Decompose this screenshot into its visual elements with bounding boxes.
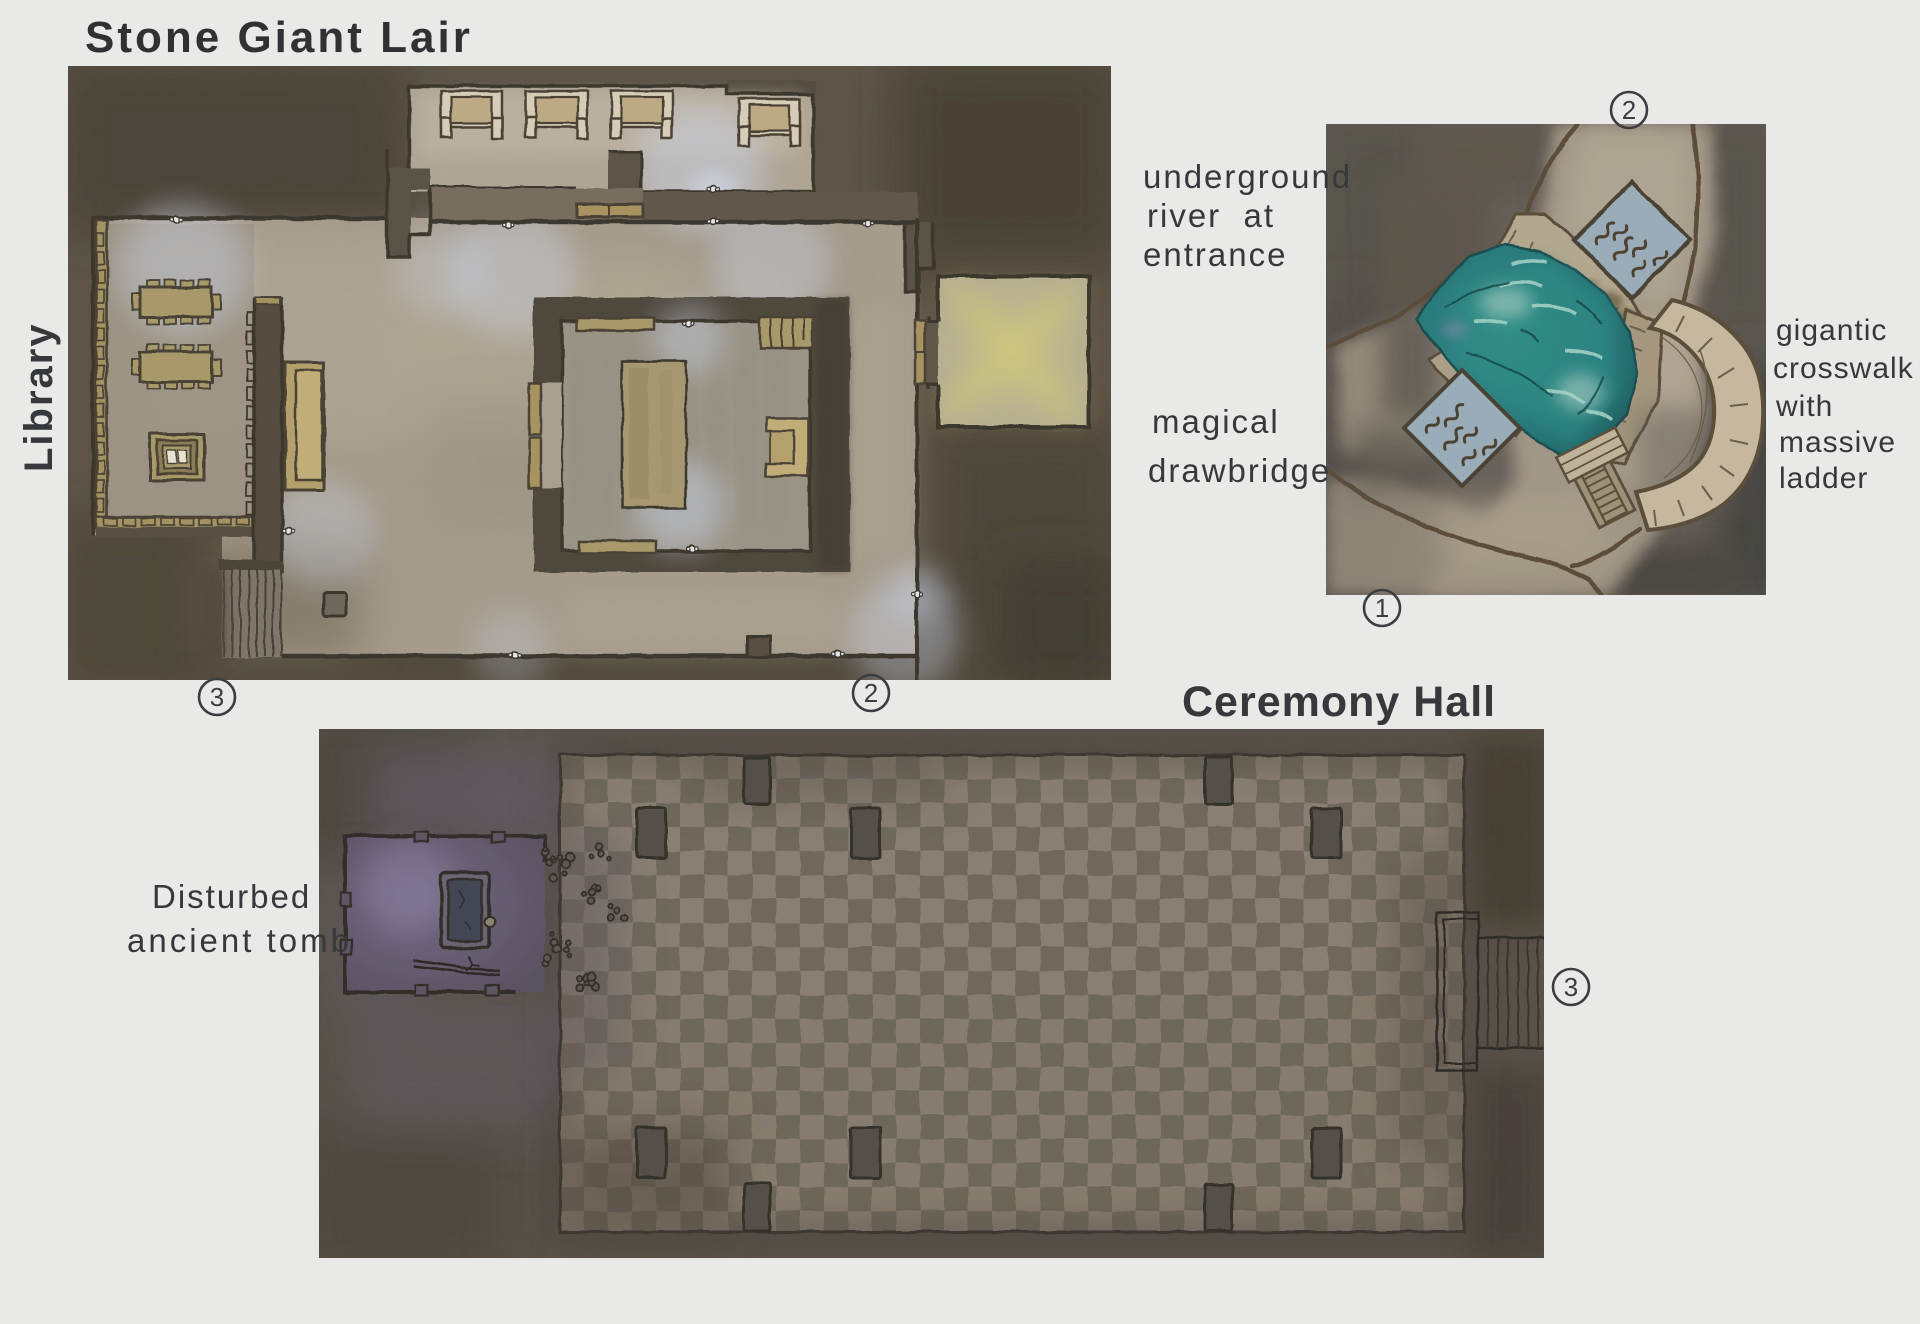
svg-text:ladder: ladder bbox=[1779, 462, 1868, 495]
svg-text:underground: underground bbox=[1143, 158, 1352, 195]
svg-text:with: with bbox=[1775, 390, 1833, 423]
svg-text:crosswalk: crosswalk bbox=[1773, 352, 1914, 385]
svg-text:2: 2 bbox=[864, 678, 878, 708]
svg-text:2: 2 bbox=[1622, 95, 1636, 125]
svg-text:Stone Giant Lair: Stone Giant Lair bbox=[85, 13, 473, 62]
svg-text:Disturbed: Disturbed bbox=[152, 878, 311, 915]
svg-text:ancient tomb: ancient tomb bbox=[127, 922, 352, 959]
svg-text:3: 3 bbox=[1564, 972, 1578, 1002]
svg-text:magical: magical bbox=[1152, 403, 1280, 440]
svg-text:gigantic: gigantic bbox=[1776, 314, 1887, 347]
svg-text:river at: river at bbox=[1147, 197, 1275, 234]
svg-text:entrance: entrance bbox=[1143, 236, 1287, 273]
svg-text:1: 1 bbox=[1375, 593, 1389, 623]
svg-text:3: 3 bbox=[210, 682, 224, 712]
svg-text:Library: Library bbox=[17, 322, 61, 472]
svg-text:Ceremony Hall: Ceremony Hall bbox=[1182, 678, 1496, 726]
svg-text:drawbridge: drawbridge bbox=[1148, 452, 1331, 489]
svg-text:massive: massive bbox=[1779, 426, 1896, 459]
